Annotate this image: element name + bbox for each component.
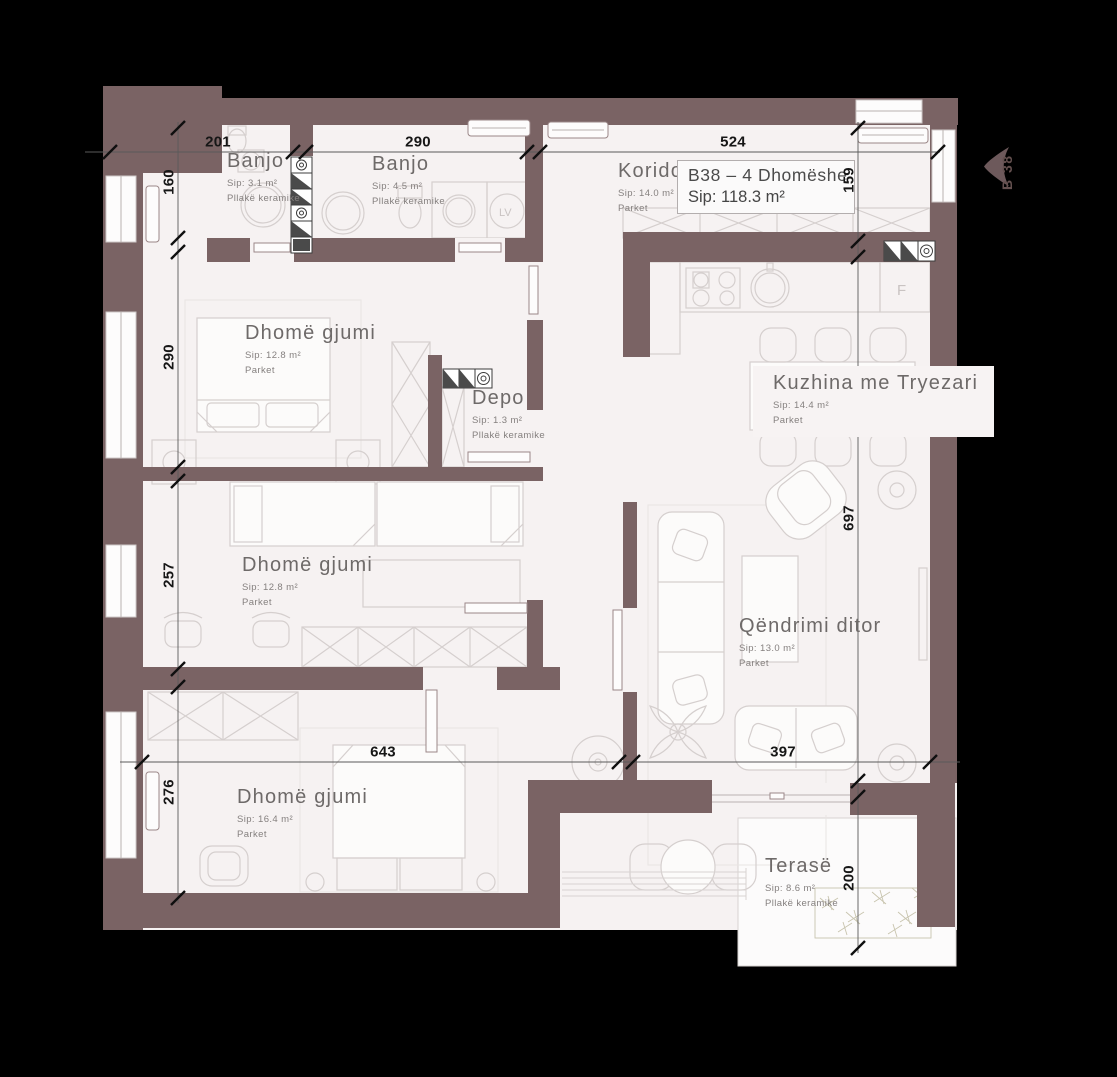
coffee-table bbox=[742, 556, 798, 662]
floorplan-drawing: F LV B 38 bbox=[0, 0, 1117, 1077]
unit-title: B38 – 4 Dhomëshe bbox=[688, 165, 844, 186]
dim-left-3: 257 bbox=[161, 562, 178, 588]
door-leaf bbox=[465, 603, 527, 613]
unit-area: Sip: 118.3 m² bbox=[688, 188, 844, 207]
washing-machine-label: LV bbox=[499, 207, 512, 219]
sofa bbox=[658, 512, 724, 724]
shaft-marker bbox=[291, 157, 312, 253]
door-leaf bbox=[529, 266, 538, 314]
dim-top-1: 201 bbox=[205, 134, 231, 151]
unit-marker-label: B 38 bbox=[999, 154, 1015, 190]
unit-marker: B 38 bbox=[984, 147, 1015, 190]
dim-bottom-1: 643 bbox=[370, 744, 396, 761]
single-bed bbox=[377, 482, 523, 546]
single-bed bbox=[230, 482, 375, 546]
unit-title-box: B38 – 4 Dhomëshe Sip: 118.3 m² bbox=[677, 160, 855, 214]
dim-bottom-2: 397 bbox=[770, 744, 796, 761]
dim-right-3: 200 bbox=[841, 865, 858, 891]
door-leaf bbox=[426, 690, 437, 752]
fridge-label: F bbox=[897, 282, 906, 299]
door-leaf bbox=[613, 610, 622, 690]
dim-top-3: 524 bbox=[720, 134, 746, 151]
door-leaf bbox=[459, 243, 501, 252]
door-leaf bbox=[468, 452, 530, 462]
dim-top-2: 290 bbox=[405, 134, 431, 151]
slider-handle bbox=[770, 793, 784, 799]
dim-left-2: 290 bbox=[161, 344, 178, 370]
floorplan-canvas: F LV B 38 Banjo Sip: 3.1 m² P bbox=[0, 0, 1117, 1077]
terrace-table bbox=[661, 840, 715, 894]
dim-right-2: 697 bbox=[841, 505, 858, 531]
dim-right-1: 159 bbox=[841, 167, 858, 193]
double-bed bbox=[197, 318, 330, 432]
dim-left-1: 160 bbox=[161, 169, 178, 195]
dining-table bbox=[750, 362, 915, 430]
dim-left-4: 276 bbox=[161, 779, 178, 805]
section-marker bbox=[884, 241, 935, 261]
door-leaf bbox=[254, 243, 290, 252]
section-marker bbox=[443, 369, 492, 388]
